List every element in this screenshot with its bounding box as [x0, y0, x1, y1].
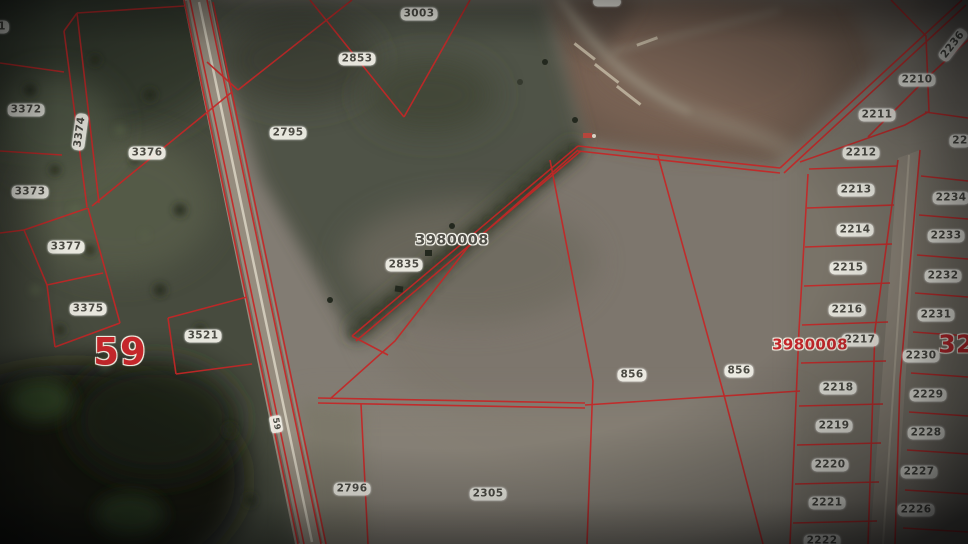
cadastral-map-screenshot: 1337233743376337333773375352128533003279… [0, 0, 968, 544]
terrain-imagery [0, 0, 968, 544]
map-canvas[interactable] [0, 0, 968, 544]
